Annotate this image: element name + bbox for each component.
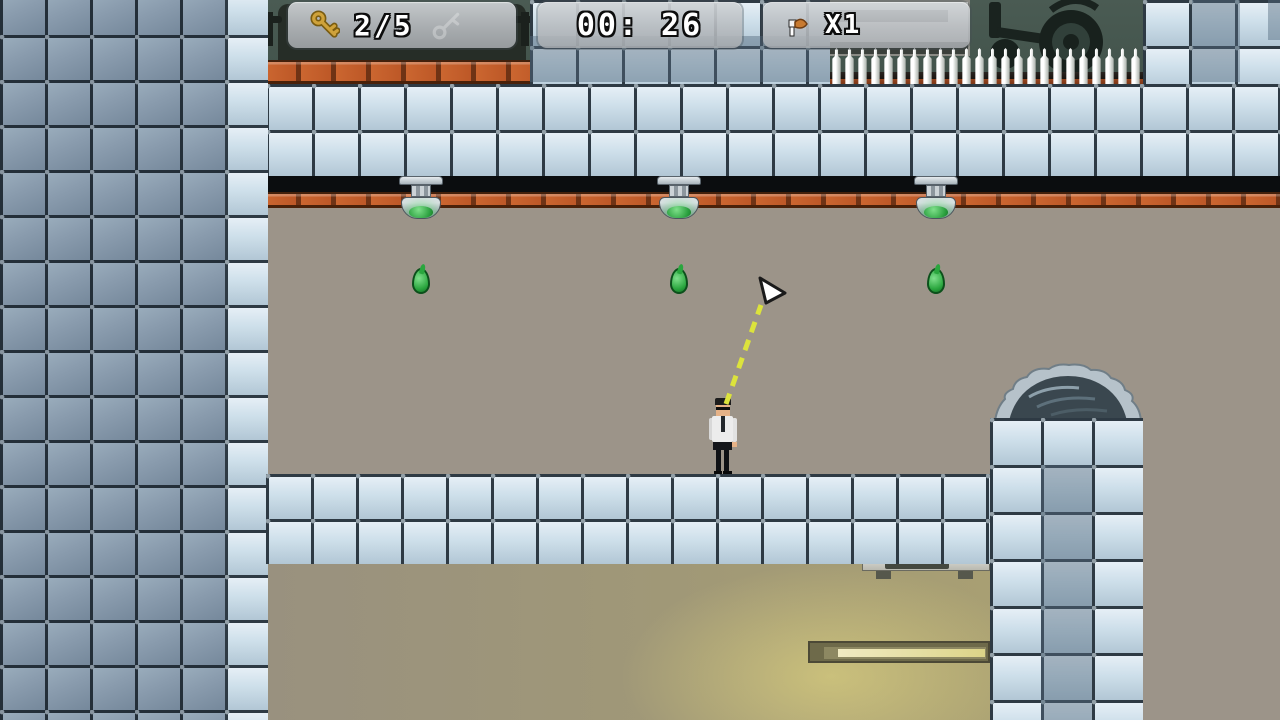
spike-icon <box>843 48 856 84</box>
game-viewport[interactable]: 2/5 00: 26 X1 <box>0 0 1280 720</box>
spike-icon <box>986 48 999 84</box>
brick-ledge <box>266 60 530 84</box>
spike-icon <box>973 48 986 84</box>
player-pants <box>713 442 732 450</box>
spike-icon <box>830 48 843 84</box>
spike-icon <box>1090 48 1103 84</box>
ceiling-lamp <box>399 176 443 226</box>
tile-band <box>266 84 1280 176</box>
spike-icon <box>869 48 882 84</box>
lamp-green-bulb <box>924 206 948 218</box>
spike-icon <box>1051 48 1064 84</box>
spike-icon <box>1116 48 1129 84</box>
player-shoe <box>723 471 732 474</box>
spike-icon <box>921 48 934 84</box>
spike-icon <box>856 48 869 84</box>
player-character <box>708 398 738 474</box>
hud-items-panel: X1 <box>763 2 970 48</box>
lamp-bowl <box>659 197 699 219</box>
lamp-bowl <box>401 197 441 219</box>
spike-icon <box>882 48 895 84</box>
hud-keys-panel: 2/5 <box>288 2 516 48</box>
lamp-neck <box>669 185 689 197</box>
ceiling-lamp <box>657 176 701 226</box>
hud-timer-panel: 00: 26 <box>538 2 742 48</box>
acid-drip <box>412 268 430 294</box>
player-leg <box>724 450 729 471</box>
player-tie <box>721 416 725 432</box>
tile-accent <box>1192 0 1240 82</box>
key-count: 2/5 <box>354 9 414 42</box>
spike-icon <box>1064 48 1077 84</box>
key-icon <box>310 10 340 40</box>
spike-icon <box>908 48 921 84</box>
player-sunglasses <box>716 407 730 410</box>
timer-value: 00: 26 <box>577 8 703 43</box>
lamp-bowl <box>916 197 956 219</box>
lamp-green-bulb <box>667 206 691 218</box>
tile-accent <box>1268 0 1280 40</box>
mouse-cursor-icon <box>760 278 785 303</box>
lamp-cap <box>914 176 958 185</box>
rail-foot <box>876 571 891 579</box>
spike-icon <box>1129 48 1142 84</box>
tile-accent <box>1041 465 1092 720</box>
spike-row <box>830 46 1143 84</box>
acid-drip <box>927 268 945 294</box>
spike-icon <box>999 48 1012 84</box>
left-wall-edge-tiles <box>225 0 268 720</box>
spike-icon <box>1025 48 1038 84</box>
cave-entrance <box>991 363 1145 421</box>
lamp-cap <box>399 176 443 185</box>
lamp-cap <box>657 176 701 185</box>
spike-icon <box>934 48 947 84</box>
player-leg <box>716 450 721 471</box>
ceiling-lamp <box>914 176 958 226</box>
door-bar-light <box>838 649 985 657</box>
lamp-neck <box>926 185 946 197</box>
player-shoe <box>714 471 722 474</box>
spike-icon <box>1012 48 1025 84</box>
spike-icon <box>1077 48 1090 84</box>
key-outline-icon <box>430 8 464 42</box>
spike-icon <box>960 48 973 84</box>
spike-icon <box>947 48 960 84</box>
left-wall-tiles <box>0 0 225 720</box>
lamp-green-bulb <box>409 206 433 218</box>
spike-icon <box>1038 48 1051 84</box>
acid-drip <box>670 268 688 294</box>
item-icon <box>787 12 809 38</box>
main-platform-tiles <box>266 474 990 564</box>
spike-icon <box>895 48 908 84</box>
player-hand <box>732 442 737 447</box>
sliding-door-bar <box>808 641 990 663</box>
player-hair <box>715 398 731 405</box>
aim-line <box>726 305 761 404</box>
item-count: X1 <box>825 10 862 40</box>
rail-foot <box>958 571 973 579</box>
lamp-neck <box>411 185 431 197</box>
spike-icon <box>1103 48 1116 84</box>
